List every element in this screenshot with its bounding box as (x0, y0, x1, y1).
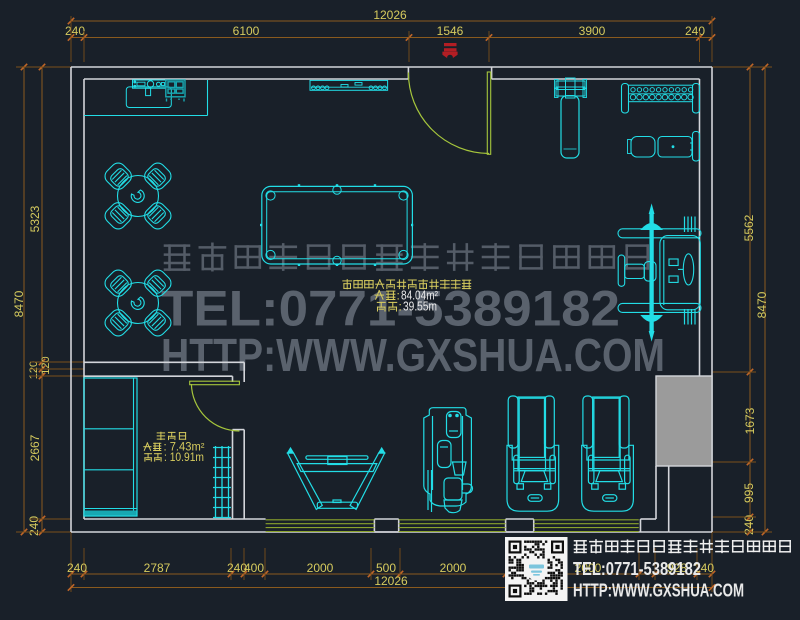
svg-text:2000: 2000 (440, 561, 467, 575)
svg-text:39.55m: 39.55m (403, 299, 437, 314)
svg-text:995: 995 (742, 483, 756, 503)
svg-text:8470: 8470 (12, 290, 26, 317)
svg-text::: : (399, 300, 402, 314)
svg-text:TEL:0771-5389182: TEL:0771-5389182 (573, 558, 701, 579)
svg-text:120: 120 (40, 356, 52, 374)
svg-text:2787: 2787 (144, 561, 171, 575)
svg-text:HTTP:WWW.GXSHUA.COM: HTTP:WWW.GXSHUA.COM (573, 580, 744, 601)
svg-text:3900: 3900 (579, 24, 606, 38)
svg-text:2000: 2000 (307, 561, 334, 575)
svg-text:6100: 6100 (233, 24, 260, 38)
svg-text:: 10.91m: : 10.91m (164, 452, 204, 464)
svg-text:5323: 5323 (28, 205, 42, 232)
svg-text:2667: 2667 (28, 434, 42, 461)
svg-text:12026: 12026 (374, 574, 408, 588)
svg-text:1546: 1546 (437, 24, 464, 38)
svg-text:12026: 12026 (373, 8, 407, 22)
svg-text:240: 240 (65, 24, 85, 38)
svg-text:1673: 1673 (743, 407, 757, 434)
svg-text:240: 240 (67, 561, 87, 575)
svg-text:5562: 5562 (742, 214, 756, 241)
svg-text:240: 240 (685, 24, 705, 38)
svg-text:500: 500 (376, 561, 396, 575)
svg-text:HTTP:WWW.GXSHUA.COM: HTTP:WWW.GXSHUA.COM (161, 329, 665, 381)
svg-text:8470: 8470 (755, 291, 769, 318)
svg-text:400: 400 (244, 561, 264, 575)
